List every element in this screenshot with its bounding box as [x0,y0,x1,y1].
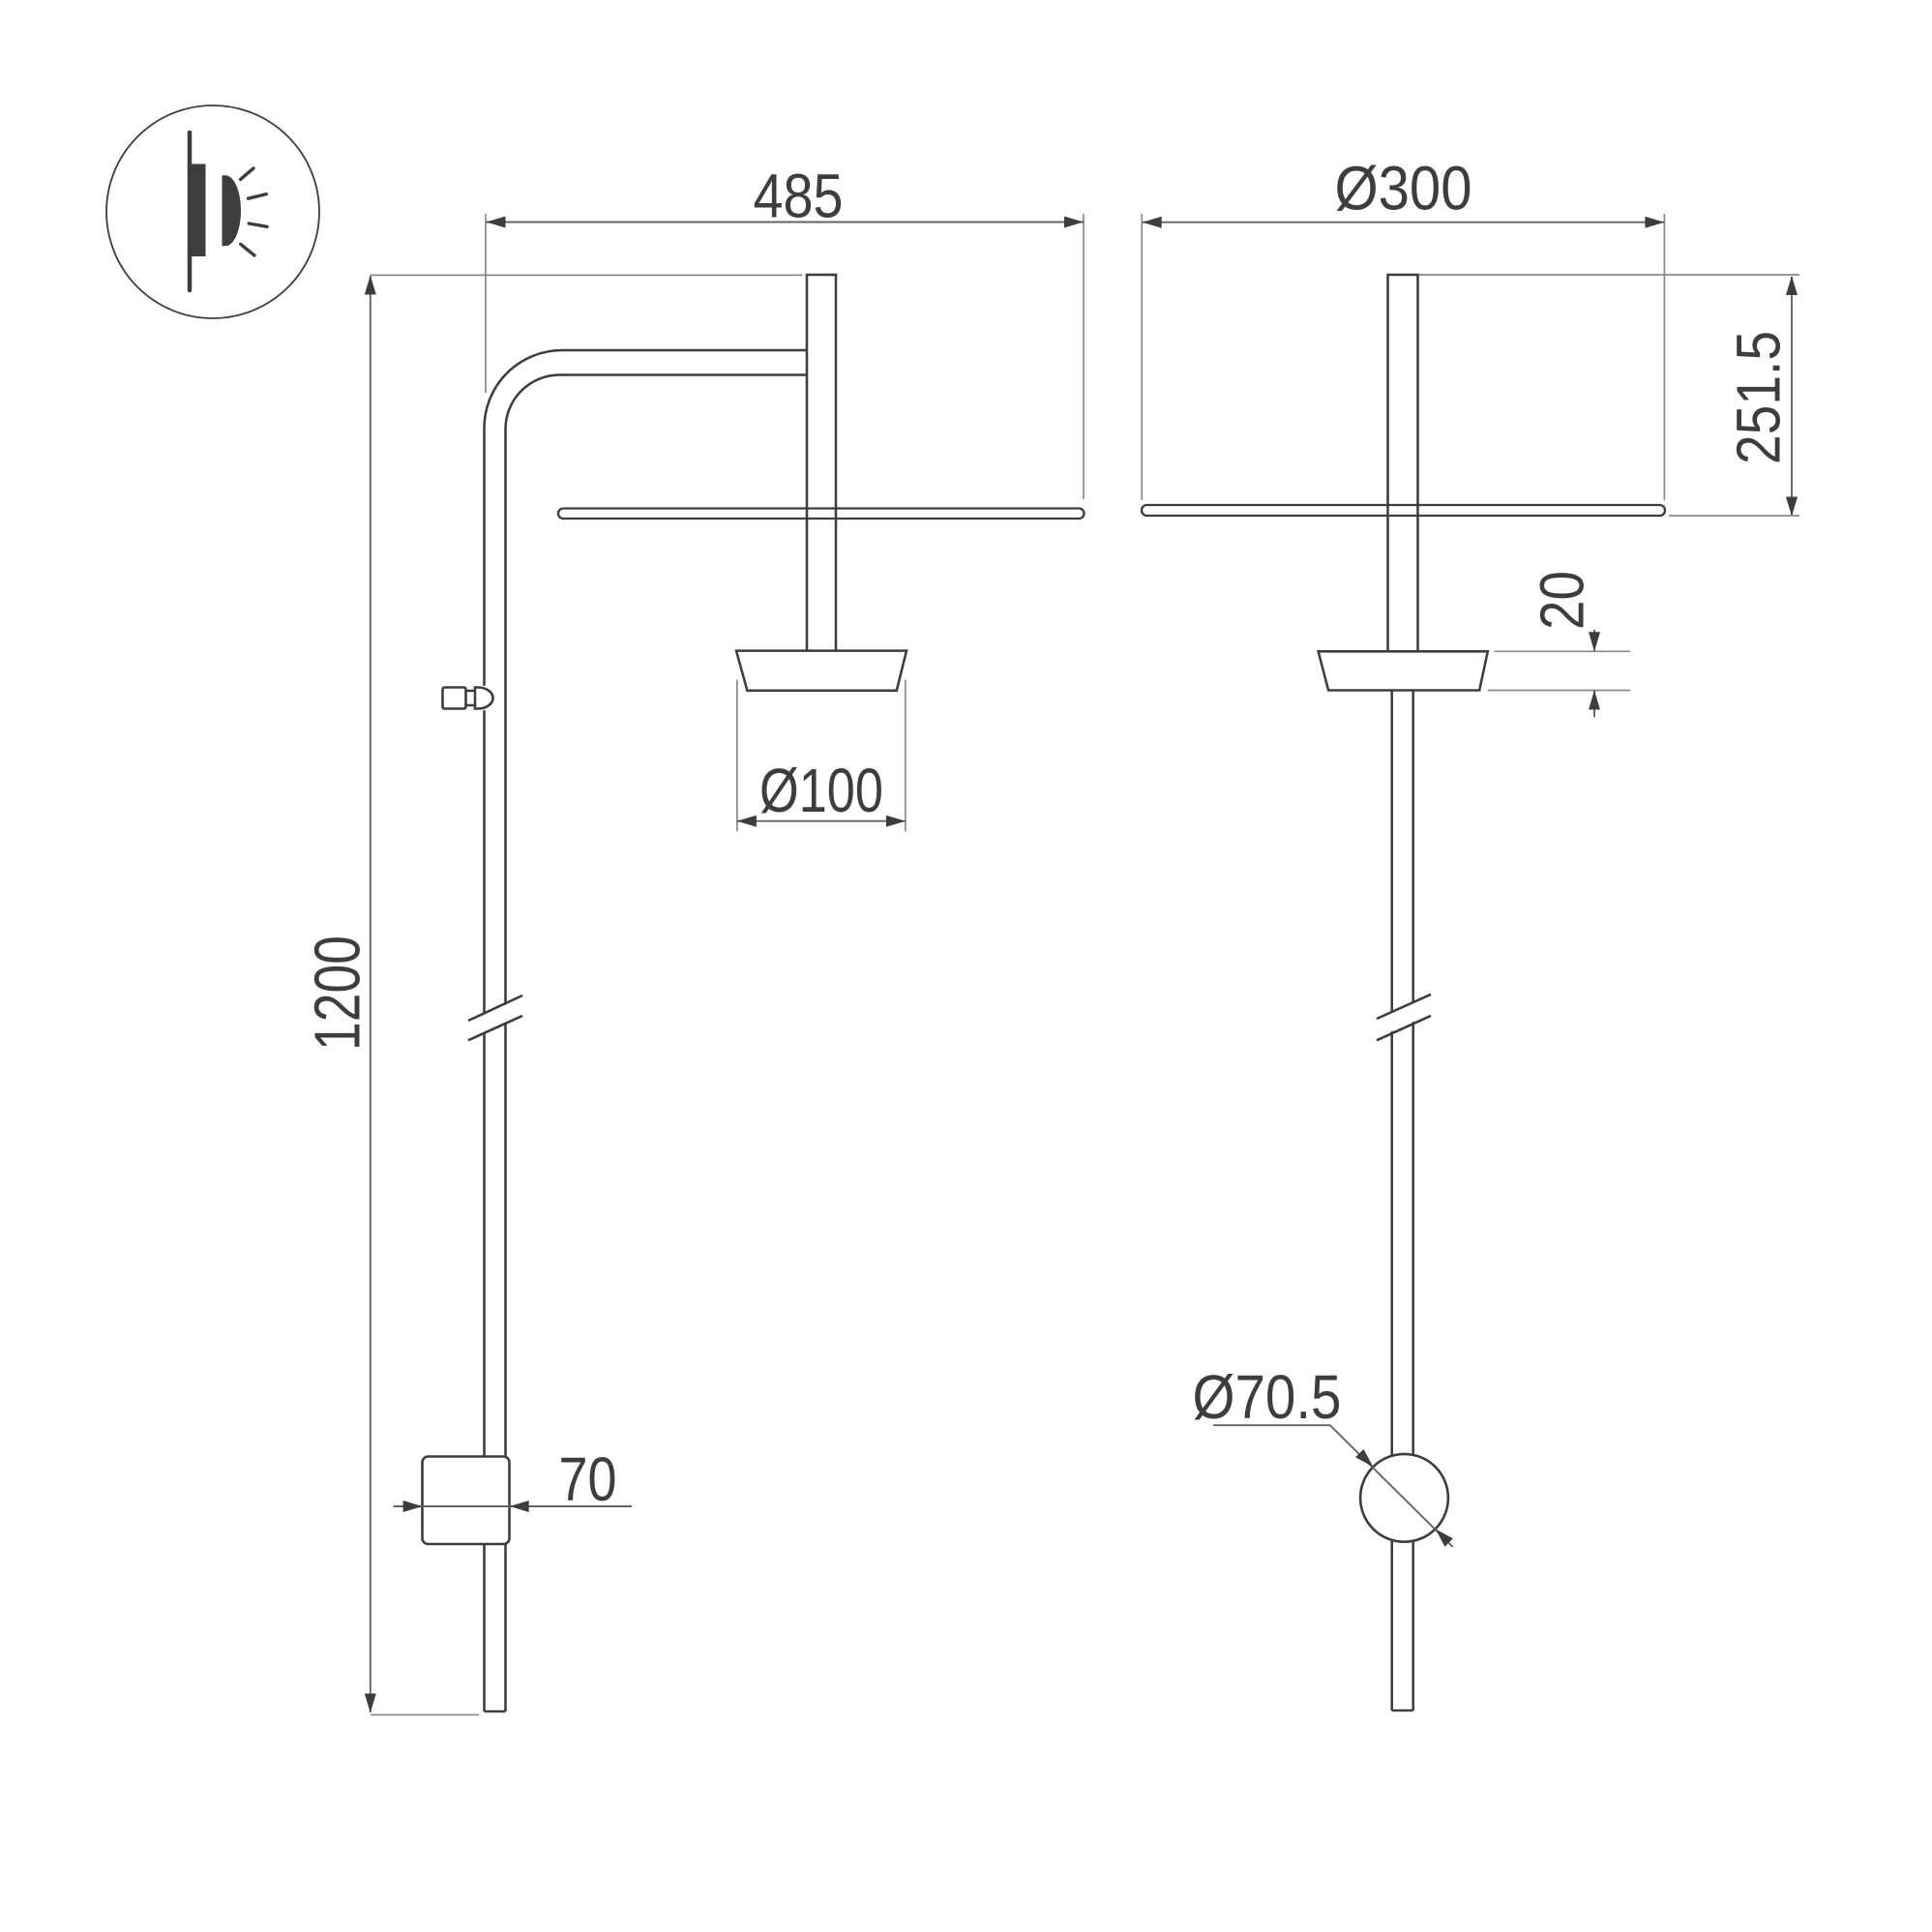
svg-text:485: 485 [754,162,844,231]
svg-text:1200: 1200 [302,936,374,1051]
svg-text:Ø100: Ø100 [759,756,883,825]
svg-text:20: 20 [1528,571,1597,630]
svg-text:70: 70 [559,1444,617,1514]
svg-text:Ø70.5: Ø70.5 [1193,1362,1342,1432]
svg-text:Ø300: Ø300 [1335,154,1472,223]
svg-text:251.5: 251.5 [1724,331,1794,464]
